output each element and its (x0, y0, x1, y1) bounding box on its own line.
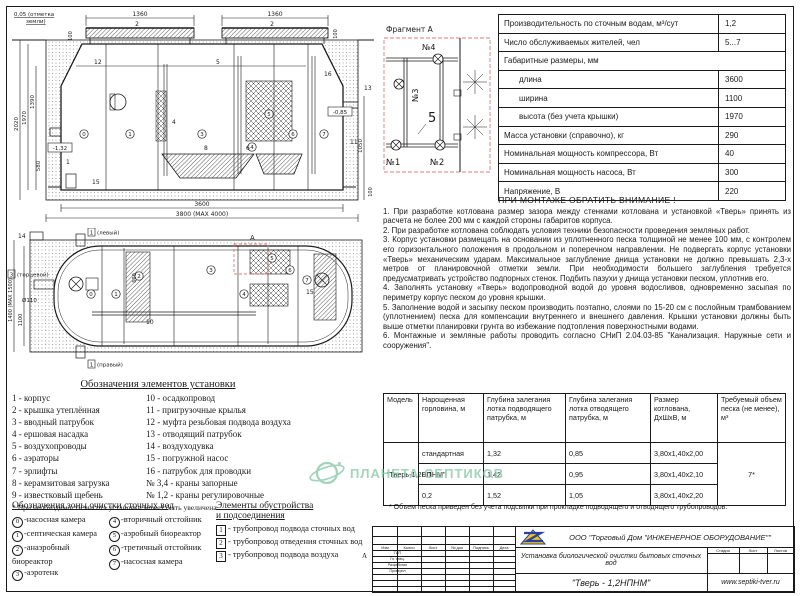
fitting-number: 3 (216, 551, 226, 562)
spec-row: Номинальная мощность компрессора, Вт40 (499, 144, 785, 163)
svg-text:16: 16 (324, 71, 332, 78)
zone-item: 5-аэробный биореактор (109, 528, 214, 542)
fitting-item: 1- трубопровод подвода сточных вод (216, 523, 384, 536)
svg-text:600: 600 (132, 273, 138, 283)
svg-text:№3: №3 (411, 89, 420, 102)
legend-item: 12 - муфта резьбовая подвода воздуха (146, 416, 304, 428)
stamp-col-list: Лист (421, 544, 445, 550)
legend-item: 11 - пригрузочные крылья (146, 404, 304, 416)
svg-text:13: 13 (364, 85, 372, 92)
svg-text:12: 12 (94, 59, 102, 66)
svg-text:8: 8 (204, 145, 208, 152)
zone-item: 2-анаэробный биореактор (12, 542, 109, 567)
legend-item: 10 - осадкопровод (146, 392, 304, 404)
svg-text:3600: 3600 (194, 201, 209, 208)
spec-row: Масса установки (справочно), кг290 (499, 126, 785, 145)
sand-volume-cell: 7* (718, 443, 786, 506)
legend-item: 7 - эрлифты (12, 465, 146, 477)
svg-text:1360: 1360 (267, 11, 282, 18)
tank-plan-outline (54, 246, 352, 346)
stamp-row-proveril: Проверил (373, 568, 421, 574)
spec-row: ширина1100 (499, 88, 785, 107)
spec-row: Номинальная мощность насоса, Вт300 (499, 163, 785, 182)
notice-paragraph: 5. Заполнение водой и засыпку песком про… (383, 303, 791, 332)
svg-text:1970: 1970 (22, 111, 28, 125)
legend-elements-col2: 10 - осадкопровод 11 - пригрузочные крыл… (146, 392, 304, 501)
website: www.septiki-tver.ru (707, 573, 794, 592)
notice-title: ПРИ МОНТАЖЕ ОБРАТИТЬ ВНИМАНИЕ ! (383, 196, 791, 206)
svg-text:6: 6 (288, 268, 292, 274)
model-table: Модель Нарощенная горловина, м Глубина з… (383, 393, 786, 506)
zone-item: 6-третичный отстойник (109, 542, 214, 556)
svg-text:3: 3 (200, 132, 204, 138)
svg-text:1: 1 (114, 292, 118, 298)
svg-text:5: 5 (216, 59, 220, 66)
legend-fittings-title: Элементы обустройства и подсоединения (216, 501, 384, 521)
fragment-pipes (386, 38, 487, 172)
spec-row: длина3600 (499, 70, 785, 89)
spec-row: Производительность по сточным водам, м³/… (499, 15, 785, 33)
svg-text:4: 4 (242, 292, 246, 298)
model-name-cell: "Тверь-1,2НПНМ" (384, 443, 419, 506)
model-table-footnote: * Объем песка приведен без учета подсыпк… (389, 504, 789, 511)
svg-text:4: 4 (250, 145, 254, 151)
zone-item: 3-аэротенк (12, 567, 109, 581)
svg-text:1390: 1390 (30, 95, 36, 109)
svg-text:0: 0 (82, 132, 86, 138)
svg-text:0,05 (отметка: 0,05 (отметка (14, 12, 54, 18)
spec-row: высота (без учета крышки)1970 (499, 107, 785, 126)
title-block: Изм Колич Лист № док Подпись Дата ГИП Гл… (372, 526, 795, 593)
zone-number: 0 (12, 517, 23, 528)
legend-item: № 3,4 - краны запорные (146, 477, 304, 489)
notice-paragraph: 1. При разработке котлована размер зазор… (383, 207, 791, 226)
legend-elements: Обозначения элементов установки 1 - корп… (12, 379, 304, 512)
svg-text:(торцевой): (торцевой) (17, 272, 49, 279)
svg-text:11: 11 (350, 139, 358, 146)
legend-item: 16 - патрубок для проводки (146, 465, 304, 477)
svg-text:1: 1 (90, 231, 94, 237)
svg-text:-1,32: -1,32 (53, 146, 67, 152)
svg-text:100: 100 (333, 29, 339, 39)
svg-text:7: 7 (322, 132, 326, 138)
svg-text:15: 15 (306, 289, 314, 296)
model-title: "Тверь - 1,2НПНМ" (517, 573, 705, 592)
legend-fittings: Элементы обустройства и подсоединения 1-… (216, 501, 384, 562)
zone-number: 6 (109, 545, 120, 556)
svg-text:0: 0 (89, 292, 93, 298)
spec-row: Габаритные размеры, мм (499, 51, 785, 70)
svg-text:-0,85: -0,85 (333, 110, 348, 116)
svg-text:1100: 1100 (18, 314, 24, 327)
svg-text:3: 3 (209, 268, 213, 274)
svg-text:№4: №4 (422, 43, 435, 52)
fragment-a-drawing: Фрагмент А (382, 22, 494, 192)
zone-number: 7 (109, 559, 120, 570)
svg-text:3800 (МАХ 4000): 3800 (МАХ 4000) (176, 211, 228, 218)
legend-item: 8 - керамзитовая загрузка (12, 477, 146, 489)
svg-text:1400 (МАХ 1500): 1400 (МАХ 1500) (8, 278, 14, 322)
zone-item: 0-насосная камера (12, 514, 109, 528)
legend-item: 13 - отводящий патрубок (146, 428, 304, 440)
legend-item: 1 - корпус (12, 392, 146, 404)
stamp-col-podpis: Подпись (469, 544, 493, 550)
fitting-number: 1 (216, 525, 226, 536)
svg-text:100: 100 (368, 187, 374, 197)
drawing-sheet: 0 1 3 4 5 6 7 0,05 (отметка земли) 1360 … (0, 0, 800, 596)
legend-item: 5 - воздухопроводы (12, 440, 146, 452)
svg-text:2: 2 (135, 21, 139, 28)
stadiya-header: Стадия (707, 547, 739, 553)
svg-text:6: 6 (291, 132, 295, 138)
svg-text:14: 14 (18, 233, 26, 240)
zone-number: 4 (109, 517, 120, 528)
spec-table: Производительность по сточным водам, м³/… (498, 14, 786, 201)
plan-view-drawing: А 0 1 2 3 4 5 6 7 14 10 15 Ø110 3 (торце… (6, 228, 380, 378)
svg-text:5: 5 (267, 112, 271, 118)
legend-elements-col1: 1 - корпус 2 - крышка утеплённая 3 - вво… (12, 392, 146, 501)
legend-item: № 1,2 - краны регулировочные (146, 489, 304, 501)
fitting-item: 3- трубопровод подвода воздуха (216, 549, 384, 562)
listov-header: Листов (767, 547, 794, 553)
legend-item: 2 - крышка утеплённая (12, 404, 146, 416)
svg-text:7: 7 (305, 278, 309, 284)
svg-text:3: 3 (10, 273, 14, 279)
spec-row: Число обслуживаемых жителей, чел5...7 (499, 33, 785, 52)
svg-text:2020: 2020 (14, 117, 20, 131)
legend-item: 9 - известковый щебень (12, 489, 146, 501)
frame-zone-marker: А (362, 552, 367, 560)
svg-text:2: 2 (270, 21, 274, 28)
list-header: Лист (739, 547, 767, 553)
notice-paragraph: 3. Корпус установки размещать на основан… (383, 235, 791, 283)
legend-item: 3 - вводный патрубок (12, 416, 146, 428)
legend-zones-title: Обозначения зоны очистки сточных вод (12, 501, 214, 511)
legend-item: 4 - ершовая насадка (12, 428, 146, 440)
company-name: ООО "Торговый Дом "ИНЖЕНЕРНОЕ ОБОРУДОВАН… (548, 527, 792, 547)
fragment-callout-letter: А (250, 234, 255, 242)
zone-number: 5 (109, 531, 120, 542)
zone-number: 1 (12, 531, 23, 542)
svg-text:4: 4 (172, 119, 176, 126)
legend-zones-col1: 0-насосная камера 1-септическая камера 2… (12, 514, 109, 581)
model-table-row: "Тверь-1,2НПНМ" стандартная 1,32 0,85 3,… (384, 443, 786, 464)
svg-text:№1: №1 (386, 158, 400, 168)
svg-text:1: 1 (128, 132, 132, 138)
stamp-col-doc: № док (445, 544, 469, 550)
notice-paragraph: 4. Заполнять установку «Тверь» водопрово… (383, 283, 791, 302)
svg-text:1: 1 (90, 363, 94, 369)
svg-text:земли): земли) (26, 19, 46, 25)
model-table-header-row: Модель Нарощенная горловина, м Глубина з… (384, 394, 786, 443)
zone-item: 4-вторичный отстойник (109, 514, 214, 528)
fitting-number: 2 (216, 538, 226, 549)
notice-paragraph: 6. Монтажные и земляные работы проводить… (383, 331, 791, 350)
side-view-drawing: 0 1 3 4 5 6 7 0,05 (отметка земли) 1360 … (6, 6, 380, 228)
svg-text:5: 5 (270, 256, 274, 262)
installation-notice: ПРИ МОНТАЖЕ ОБРАТИТЬ ВНИМАНИЕ ! 1. При р… (383, 196, 791, 393)
svg-text:№2: №2 (430, 158, 444, 168)
notice-paragraph: 2. При разработке котлована соблюдать ус… (383, 226, 791, 236)
project-description: Установка биологической очистки бытовых … (517, 547, 705, 573)
svg-text:1: 1 (66, 159, 70, 166)
svg-text:6: 6 (246, 145, 250, 152)
svg-text:1050: 1050 (358, 139, 364, 153)
svg-text:5: 5 (428, 111, 436, 126)
svg-text:(левый): (левый) (97, 230, 119, 237)
svg-text:580: 580 (36, 160, 42, 171)
svg-text:15: 15 (92, 179, 100, 186)
legend-item: 15 - погружной насос (146, 452, 304, 464)
svg-text:10: 10 (146, 319, 154, 326)
svg-text:(правый): (правый) (97, 362, 123, 369)
zone-item: 7-насосная камера (109, 556, 214, 570)
legend-elements-title: Обозначения элементов установки (12, 379, 304, 390)
zone-number: 3 (12, 570, 23, 581)
svg-text:100: 100 (68, 31, 74, 41)
legend-item: 14 - воздуходувка (146, 440, 304, 452)
company-logo (520, 529, 546, 545)
stamp-col-data: Дата (493, 544, 515, 550)
fragment-title: Фрагмент А (386, 25, 434, 34)
svg-text:1360: 1360 (132, 11, 147, 18)
legend-zones: Обозначения зоны очистки сточных вод 0-н… (12, 501, 214, 581)
legend-zones-col2: 4-вторичный отстойник 5-аэробный биореак… (109, 514, 214, 581)
fitting-item: 2- трубопровод отведения сточных вод (216, 536, 384, 549)
zone-number: 2 (12, 545, 23, 556)
zone-item: 1-септическая камера (12, 528, 109, 542)
legend-item: 6 - аэраторы (12, 452, 146, 464)
